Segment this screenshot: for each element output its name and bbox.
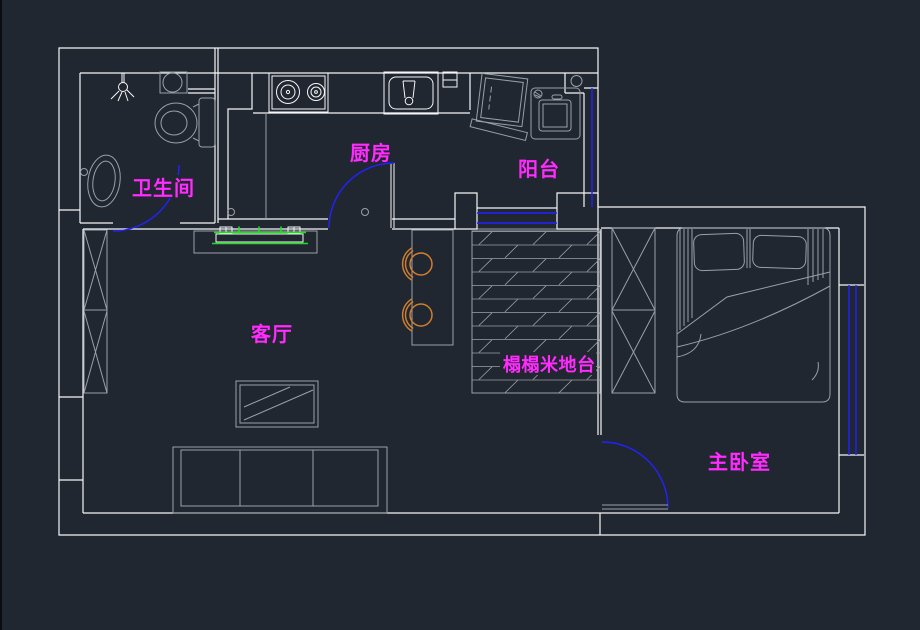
double-bed — [677, 228, 830, 402]
kitchen-door-arc — [329, 163, 394, 228]
wardrobe-left — [84, 230, 107, 393]
coffee-table — [236, 381, 318, 427]
label-master-bedroom: 主卧室 — [708, 450, 771, 474]
window-south — [477, 213, 557, 223]
label-living-room: 客厅 — [250, 322, 293, 346]
label-bathroom: 卫生间 — [132, 176, 195, 200]
chair-top — [403, 248, 432, 280]
shower-head-icon — [111, 73, 134, 101]
desk-table — [412, 230, 453, 345]
label-tatami: 榻榻米地台 — [503, 354, 596, 376]
cad-drawing-area: 卫生间 厨房 阳台 客厅 榻榻米地台 主卧室 — [0, 0, 920, 630]
floor-plan-canvas: 卫生间 厨房 阳台 客厅 榻榻米地台 主卧室 — [0, 0, 920, 630]
room-labels: 卫生间 厨房 阳台 客厅 榻榻米地台 主卧室 — [130, 141, 771, 474]
sofa — [173, 447, 387, 513]
label-kitchen: 厨房 — [350, 141, 392, 165]
living-room-furniture — [84, 227, 453, 514]
bedroom-door-leaf — [602, 505, 668, 509]
tilted-appliance — [476, 73, 528, 126]
window-bedroom-east — [849, 285, 856, 455]
gas-stove — [269, 73, 328, 112]
counter-box — [443, 72, 457, 87]
floor-drain — [571, 76, 582, 87]
bedroom-door-arc — [602, 442, 668, 508]
drain-marker — [362, 209, 369, 216]
washing-machine — [531, 88, 580, 139]
chair-bottom — [403, 299, 432, 331]
vent-circle — [160, 72, 187, 93]
kitchen-fixtures — [228, 72, 458, 216]
wash-basin — [81, 153, 124, 209]
label-balcony: 阳台 — [518, 157, 560, 181]
kitchen-sink — [384, 72, 438, 114]
wardrobe-bedroom — [612, 228, 655, 393]
toilet — [155, 98, 215, 147]
bedroom-furniture — [612, 228, 830, 402]
column — [455, 193, 477, 229]
